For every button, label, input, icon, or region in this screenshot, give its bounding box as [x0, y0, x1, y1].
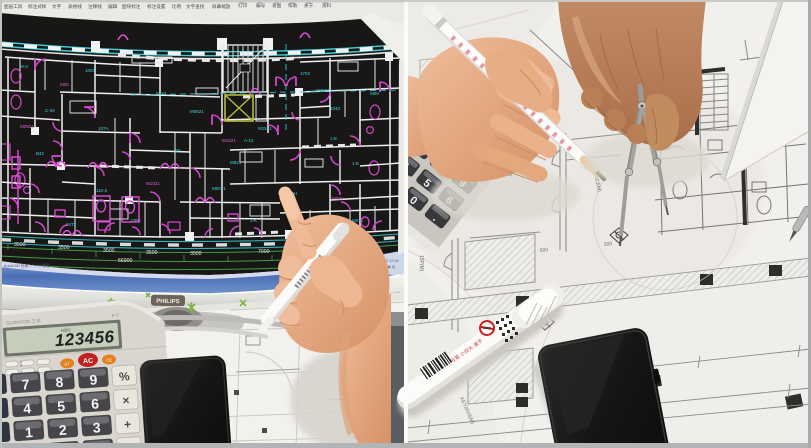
svg-text:M0921: M0921: [20, 124, 34, 129]
svg-text:M-3: M-3: [20, 64, 28, 69]
svg-text:2: 2: [58, 422, 67, 439]
svg-text:97X2: 97X2: [156, 91, 167, 96]
svg-text:B42: B42: [36, 151, 45, 156]
svg-text:3: 3: [92, 419, 101, 436]
svg-text:图块标注: 图块标注: [122, 3, 141, 10]
svg-text:比例: 比例: [172, 3, 182, 10]
svg-text:M0521: M0521: [190, 109, 204, 114]
svg-text:110-2: 110-2: [96, 188, 108, 193]
svg-text:M921: M921: [230, 160, 242, 165]
svg-text:8: 8: [55, 374, 64, 391]
svg-text:M1021: M1021: [146, 181, 160, 186]
svg-text:1-K: 1-K: [250, 218, 257, 223]
svg-text:500: 500: [540, 247, 549, 254]
svg-text:200: 200: [604, 241, 613, 248]
svg-text:C-08: C-08: [45, 108, 55, 113]
svg-text:5: 5: [57, 398, 66, 415]
svg-text:3500: 3500: [58, 245, 70, 251]
svg-text:6: 6: [91, 395, 100, 412]
svg-text:注释线: 注释线: [88, 3, 102, 10]
svg-text:107A: 107A: [98, 126, 109, 131]
svg-text:1: 1: [24, 424, 33, 441]
svg-text:GT: GT: [64, 361, 70, 366]
svg-text:7000: 7000: [258, 249, 270, 255]
svg-text:PHILIPS: PHILIPS: [156, 299, 179, 305]
svg-text:15P(M): 15P(M): [418, 255, 424, 272]
svg-text:M1521: M1521: [222, 138, 236, 143]
svg-text:M09: M09: [370, 91, 379, 96]
svg-text:1-E: 1-E: [330, 136, 337, 141]
svg-text:标注设置: 标注设置: [147, 3, 166, 10]
svg-text:标注式样: 标注式样: [28, 3, 47, 10]
svg-text:表格线: 表格线: [68, 3, 82, 10]
svg-text:3500: 3500: [103, 248, 115, 254]
svg-text:M1521: M1521: [258, 126, 272, 131]
svg-text:AC: AC: [83, 358, 94, 366]
svg-text:×: ×: [122, 393, 130, 407]
svg-text:+: +: [124, 417, 132, 431]
svg-text:3500: 3500: [14, 242, 26, 248]
svg-text:D6: D6: [175, 148, 181, 153]
svg-text:M7221: M7221: [316, 88, 330, 93]
svg-text:M显示: M显示: [61, 328, 72, 333]
svg-text:1-E: 1-E: [352, 161, 359, 166]
svg-text:7: 7: [21, 376, 30, 393]
svg-text:AutoCAD 经典 □ ▣ ▥ 模型: AutoCAD 经典 □ ▣ ▥ 模型: [4, 263, 50, 268]
svg-text:文字查找: 文字查找: [186, 3, 205, 10]
svg-text:F-7: F-7: [112, 313, 120, 318]
svg-text:56900: 56900: [118, 258, 133, 264]
svg-text:3500: 3500: [146, 250, 158, 256]
svg-text:1040: 1040: [330, 106, 341, 111]
svg-text:屏幕缩放: 屏幕缩放: [212, 3, 231, 10]
svg-text:CE: CE: [106, 357, 112, 362]
svg-text:1003: 1003: [85, 68, 96, 73]
svg-text:文字: 文字: [52, 3, 62, 10]
svg-text:4: 4: [23, 400, 32, 417]
svg-text:M021: M021: [332, 196, 344, 201]
svg-text:M0521: M0521: [212, 186, 226, 191]
svg-text:3500: 3500: [190, 251, 202, 257]
svg-text:M05: M05: [60, 82, 69, 87]
svg-text:编辑: 编辑: [108, 3, 118, 10]
svg-text:1703: 1703: [300, 71, 311, 76]
svg-text:9: 9: [89, 371, 98, 388]
svg-text:%: %: [118, 369, 130, 384]
svg-text:A-12: A-12: [244, 138, 254, 143]
